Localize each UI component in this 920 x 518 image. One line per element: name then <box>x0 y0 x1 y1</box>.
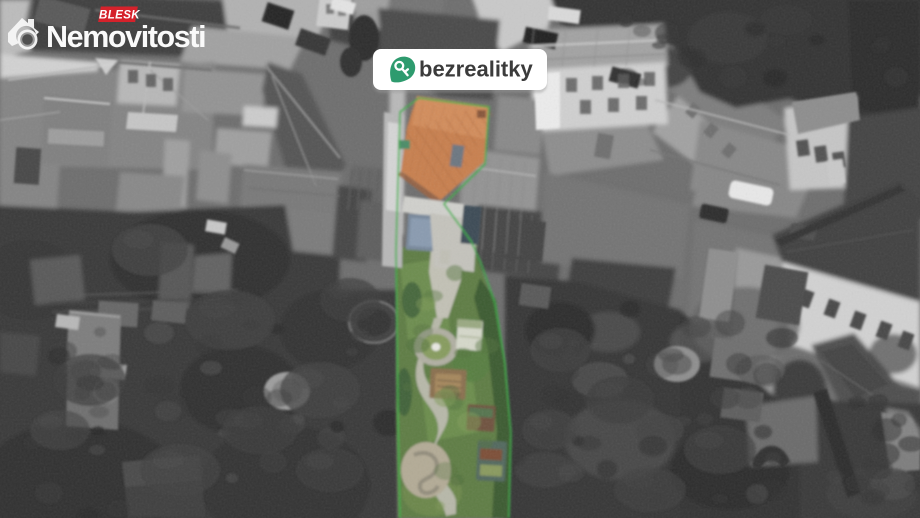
svg-text:bezrealitky: bezrealitky <box>419 57 533 82</box>
svg-text:Nemovitosti: Nemovitosti <box>46 20 205 54</box>
